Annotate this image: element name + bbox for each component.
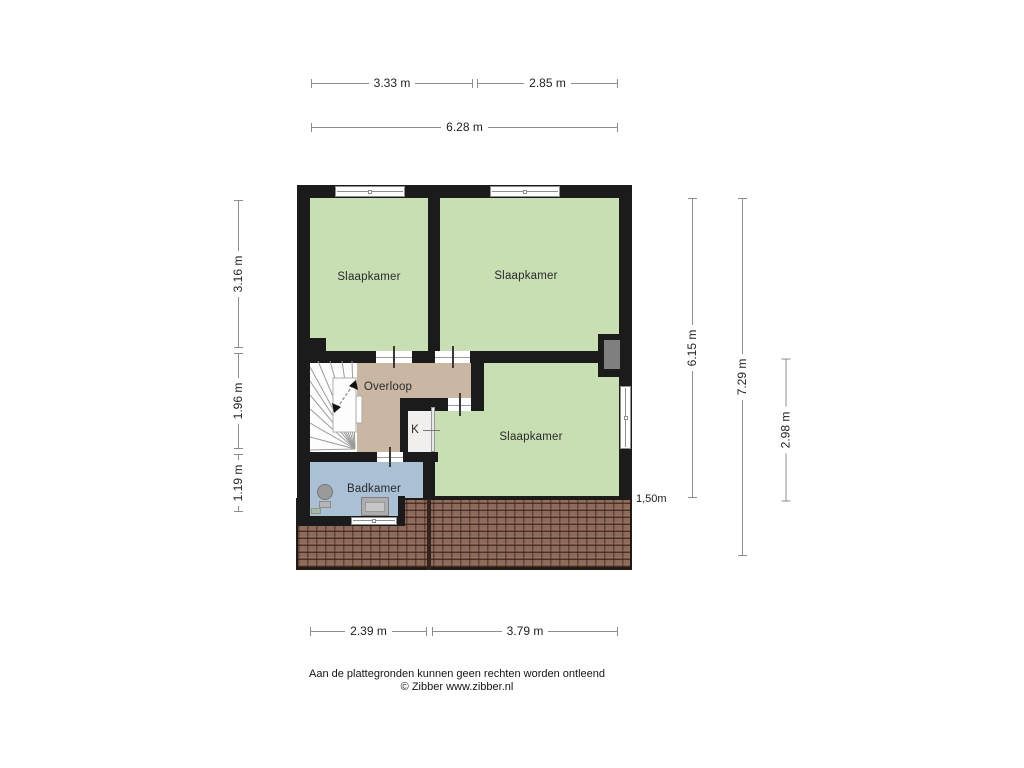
dim-top-total: 6.28 m: [311, 118, 618, 136]
wall-closet-left: [400, 407, 408, 452]
door-bedroom-bottom: [448, 398, 471, 411]
door-bedroom-top-right: [435, 351, 470, 363]
door-tick: [389, 447, 391, 467]
dim-tick: [426, 627, 427, 636]
dim-line: [548, 631, 617, 632]
dim-line: [785, 360, 786, 407]
door-tick: [393, 346, 395, 368]
dim-tick: [234, 511, 243, 512]
floorplan-canvas: 3.33 m 2.85 m 6.28 m 3.16 m 1.96 m 1.19 …: [0, 0, 1024, 768]
dim-tick: [472, 79, 473, 88]
dim-line: [311, 631, 345, 632]
dim-text-top-right: 2.85 m: [524, 76, 571, 90]
dim-tick: [234, 353, 243, 354]
label-bathroom: Badkamer: [347, 483, 401, 495]
label-bedroom-bottom: Slaapkamer: [499, 431, 562, 443]
room-bedroom-bottom-main: [484, 363, 619, 496]
wall-dormer-connector: [398, 496, 405, 526]
dim-tick: [688, 198, 697, 199]
closet-leader-line: [423, 430, 440, 431]
dim-line: [238, 506, 239, 511]
wall-bedroom-divider: [428, 198, 440, 352]
dim-tick: [617, 627, 618, 636]
roof-seam: [427, 498, 431, 570]
dim-line: [433, 631, 502, 632]
door-bedroom-top-left: [376, 351, 412, 363]
dim-tick: [234, 454, 243, 455]
plant-icon: [311, 508, 321, 514]
dim-tick: [781, 501, 790, 502]
dim-right-inner: 6.15 m: [683, 198, 701, 498]
dim-line: [692, 371, 693, 497]
window-top-right: [490, 186, 560, 197]
dim-bottom-right: 3.79 m: [432, 622, 618, 640]
dim-text-left-lower: 1.19 m: [231, 460, 245, 507]
dim-top-right: 2.85 m: [477, 74, 618, 92]
dim-line: [392, 631, 426, 632]
dim-line: [692, 199, 693, 325]
label-knee-wall: 1,50m: [636, 493, 667, 505]
dim-tick: [738, 555, 747, 556]
flue-block: [604, 340, 620, 369]
dim-line: [785, 453, 786, 500]
door-bathroom: [377, 452, 403, 462]
room-bedroom-bottom-ext: [435, 407, 484, 496]
dim-line: [571, 83, 617, 84]
label-landing: Overloop: [364, 381, 412, 393]
washbasin-stand-icon: [319, 501, 331, 508]
dim-tick: [617, 79, 618, 88]
dim-right-lower: 2.98 m: [777, 359, 795, 502]
dim-line: [415, 83, 472, 84]
dim-tick: [234, 448, 243, 449]
dim-line: [238, 354, 239, 378]
wall-bathroom-right: [423, 452, 435, 498]
washbasin-icon: [317, 484, 333, 500]
door-tick: [452, 346, 454, 368]
dim-text-right-inner: 6.15 m: [685, 325, 699, 372]
dim-top-left: 3.33 m: [311, 74, 473, 92]
dim-line: [312, 127, 441, 128]
dim-line: [238, 455, 239, 460]
label-closet: K: [411, 424, 419, 436]
bathtub-icon: [361, 497, 389, 516]
dim-tick: [781, 359, 790, 360]
door-tick: [459, 393, 461, 416]
label-bedroom-top-left: Slaapkamer: [337, 271, 400, 283]
window-top-left: [335, 186, 405, 197]
dim-text-right-outer: 7.29 m: [735, 354, 749, 401]
dim-line: [742, 400, 743, 555]
dim-bottom-left: 2.39 m: [310, 622, 427, 640]
window-right: [620, 386, 631, 449]
dim-tick: [234, 200, 243, 201]
wall-bedroom1-corner-block: [310, 338, 326, 352]
room-bathroom-right: [405, 460, 423, 498]
dim-right-outer: 7.29 m: [733, 198, 751, 556]
dim-text-left-middle: 1.96 m: [231, 378, 245, 425]
dim-tick: [234, 347, 243, 348]
dim-tick: [617, 123, 618, 132]
dim-line: [238, 424, 239, 448]
stairs: [310, 361, 365, 452]
dim-line: [238, 297, 239, 347]
dim-text-bottom-left: 2.39 m: [345, 624, 392, 638]
window-bathroom: [351, 517, 397, 525]
dim-line: [742, 199, 743, 354]
dim-tick: [738, 198, 747, 199]
footer-disclaimer: Aan de plattegronden kunnen geen rechten…: [309, 668, 605, 680]
dim-text-left-upper: 3.16 m: [231, 251, 245, 298]
dim-line: [238, 201, 239, 251]
dim-tick: [688, 497, 697, 498]
wall-bathroom-top: [297, 452, 438, 462]
dim-text-top-total: 6.28 m: [441, 120, 488, 134]
dim-text-top-left: 3.33 m: [369, 76, 416, 90]
bathtub-inner: [365, 502, 385, 512]
wall-landing-bedroom3: [471, 351, 484, 411]
dim-left-upper: 3.16 m: [229, 200, 247, 348]
label-bedroom-top-right: Slaapkamer: [494, 270, 557, 282]
dim-left-middle: 1.96 m: [229, 353, 247, 449]
dim-line: [478, 83, 524, 84]
dim-line: [312, 83, 369, 84]
dim-left-lower: 1.19 m: [229, 454, 247, 512]
dim-text-bottom-right: 3.79 m: [502, 624, 549, 638]
dim-line: [488, 127, 617, 128]
dim-text-right-lower: 2.98 m: [779, 407, 793, 454]
footer-copyright: © Zibber www.zibber.nl: [401, 681, 514, 693]
